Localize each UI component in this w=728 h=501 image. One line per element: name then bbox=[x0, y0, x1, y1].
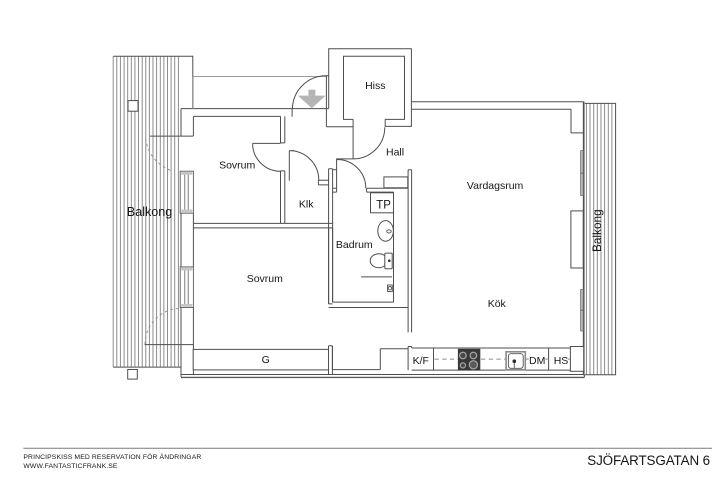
svg-text:Sovrum: Sovrum bbox=[219, 160, 255, 172]
svg-text:DM: DM bbox=[529, 355, 545, 367]
svg-text:SJÖFARTSGATAN 6: SJÖFARTSGATAN 6 bbox=[587, 453, 710, 468]
svg-text:Vardagsrum: Vardagsrum bbox=[467, 180, 524, 192]
svg-text:Balkong: Balkong bbox=[127, 205, 173, 219]
svg-text:Klk: Klk bbox=[299, 198, 314, 210]
svg-text:Sovrum: Sovrum bbox=[247, 273, 283, 285]
svg-text:PRINCIPSKISS MED RESERVATION F: PRINCIPSKISS MED RESERVATION FÖR ÄNDRING… bbox=[23, 453, 201, 461]
svg-text:WWW.FANTASTICFRANK.SE: WWW.FANTASTICFRANK.SE bbox=[23, 463, 117, 470]
svg-text:G: G bbox=[262, 354, 270, 366]
svg-text:K/F: K/F bbox=[413, 355, 429, 367]
svg-text:Balkong: Balkong bbox=[590, 209, 604, 252]
svg-text:TP: TP bbox=[376, 199, 391, 211]
svg-text:HS: HS bbox=[554, 355, 569, 367]
svg-text:Hiss: Hiss bbox=[365, 80, 385, 92]
svg-text:Hall: Hall bbox=[386, 146, 404, 158]
svg-text:Badrum: Badrum bbox=[336, 239, 373, 251]
svg-text:Kök: Kök bbox=[488, 298, 507, 310]
